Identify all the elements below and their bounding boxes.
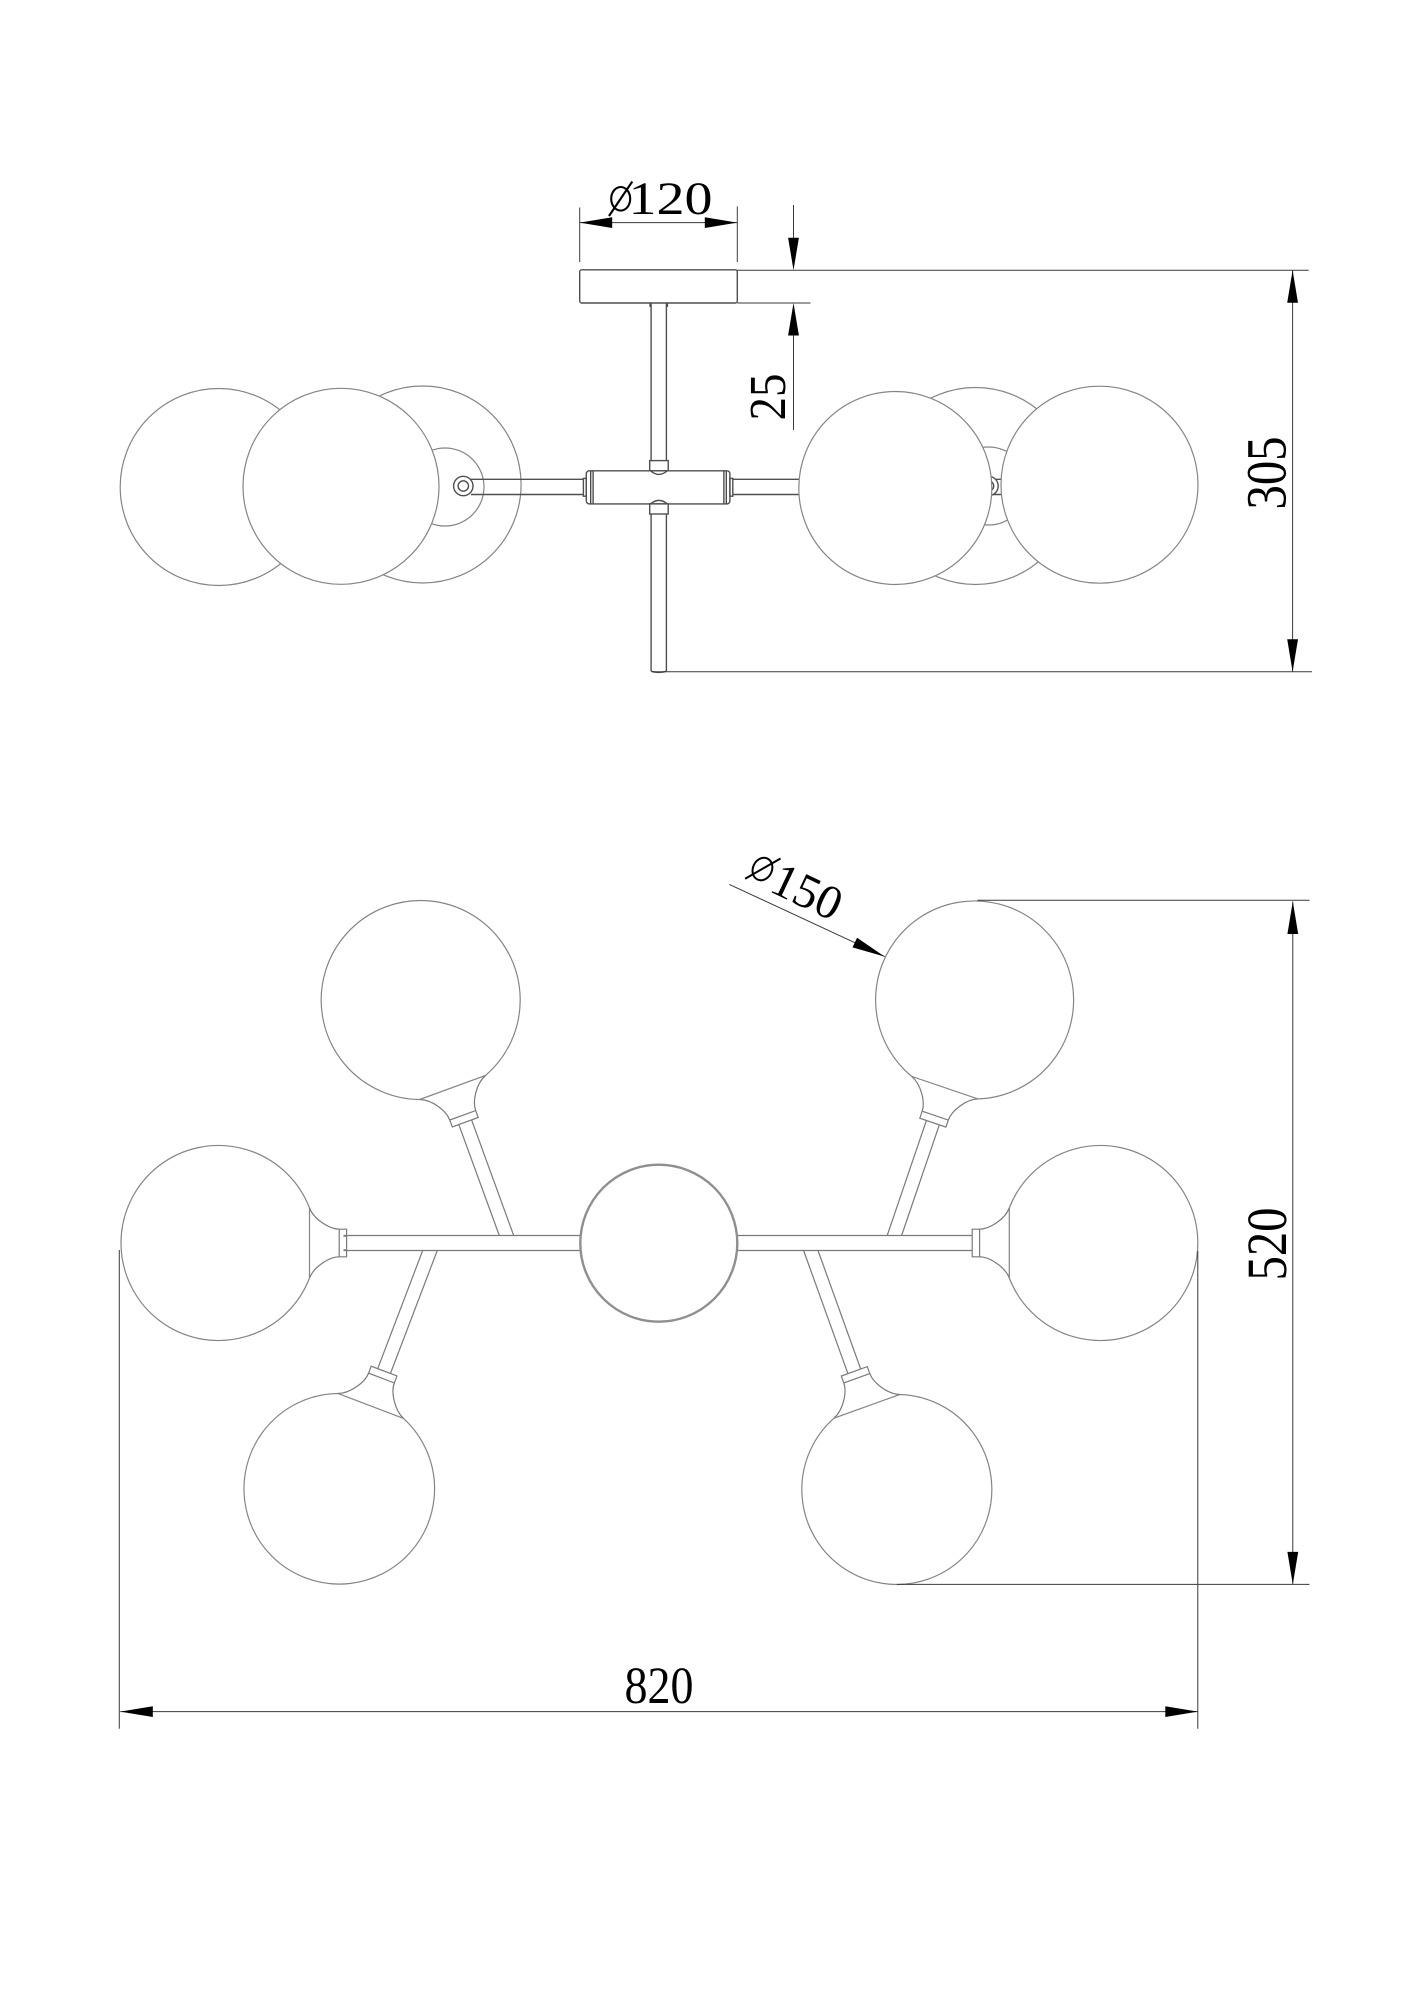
svg-text:25: 25 — [740, 374, 797, 421]
svg-text:120: 120 — [629, 174, 713, 225]
svg-text:820: 820 — [625, 1657, 694, 1715]
svg-text:520: 520 — [1236, 1208, 1299, 1281]
svg-text:305: 305 — [1236, 437, 1299, 510]
